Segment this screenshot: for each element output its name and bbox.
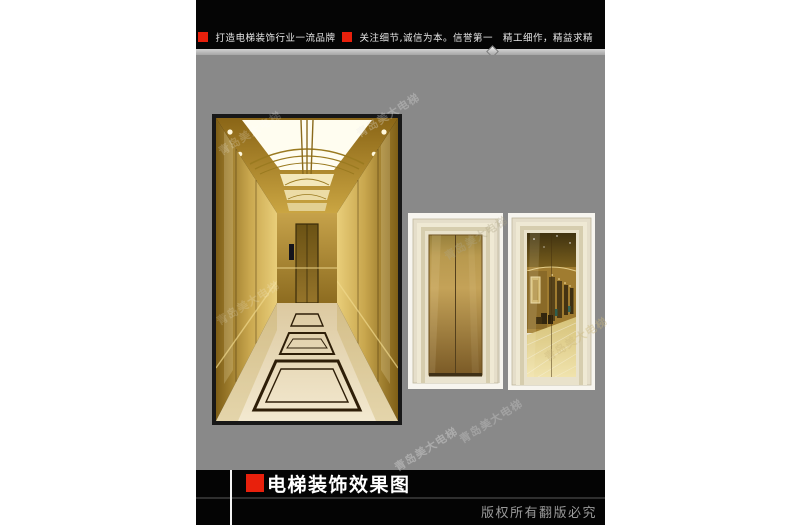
watermark-text: 青岛美大电梯 [456, 395, 526, 447]
footer-vertical-divider [230, 470, 232, 525]
red-square-icon [198, 32, 208, 42]
elevator-interior-photo [212, 114, 402, 425]
red-square-icon [246, 474, 264, 492]
slogan-values: 关注细节,诚信为本。信誉第一 精工细作，精益求精 [359, 30, 593, 44]
brochure-page: 打造电梯装饰行业一流品牌 关注细节,诚信为本。信誉第一 精工细作，精益求精 [0, 0, 800, 532]
slogan-brand: 打造电梯装饰行业一流品牌 [215, 30, 335, 44]
footer-bars: 电梯装饰效果图 版权所有翻版必究 [196, 470, 605, 525]
footer-title-row: 电梯装饰效果图 [196, 470, 605, 497]
elevator-door-closed-photo [408, 213, 503, 389]
page-title: 电梯装饰效果图 [267, 469, 411, 496]
header-bar: 打造电梯装饰行业一流品牌 关注细节,诚信为本。信誉第一 精工细作，精益求精 [196, 0, 605, 49]
elevator-door-mirror-photo [508, 213, 595, 390]
red-square-icon [342, 32, 352, 42]
footer-copyright-row: 版权所有翻版必究 [196, 499, 605, 525]
watermark-text: 青岛美大电梯 [391, 423, 461, 475]
header-slogans: 打造电梯装饰行业一流品牌 关注细节,诚信为本。信誉第一 精工细作，精益求精 [198, 30, 593, 44]
copyright-notice: 版权所有翻版必究 [481, 506, 597, 521]
showcase-panel: 青岛美大电梯 青岛美大电梯 青岛美大电梯 青岛美大电梯 青岛美大电梯 青岛美大电… [196, 55, 605, 470]
